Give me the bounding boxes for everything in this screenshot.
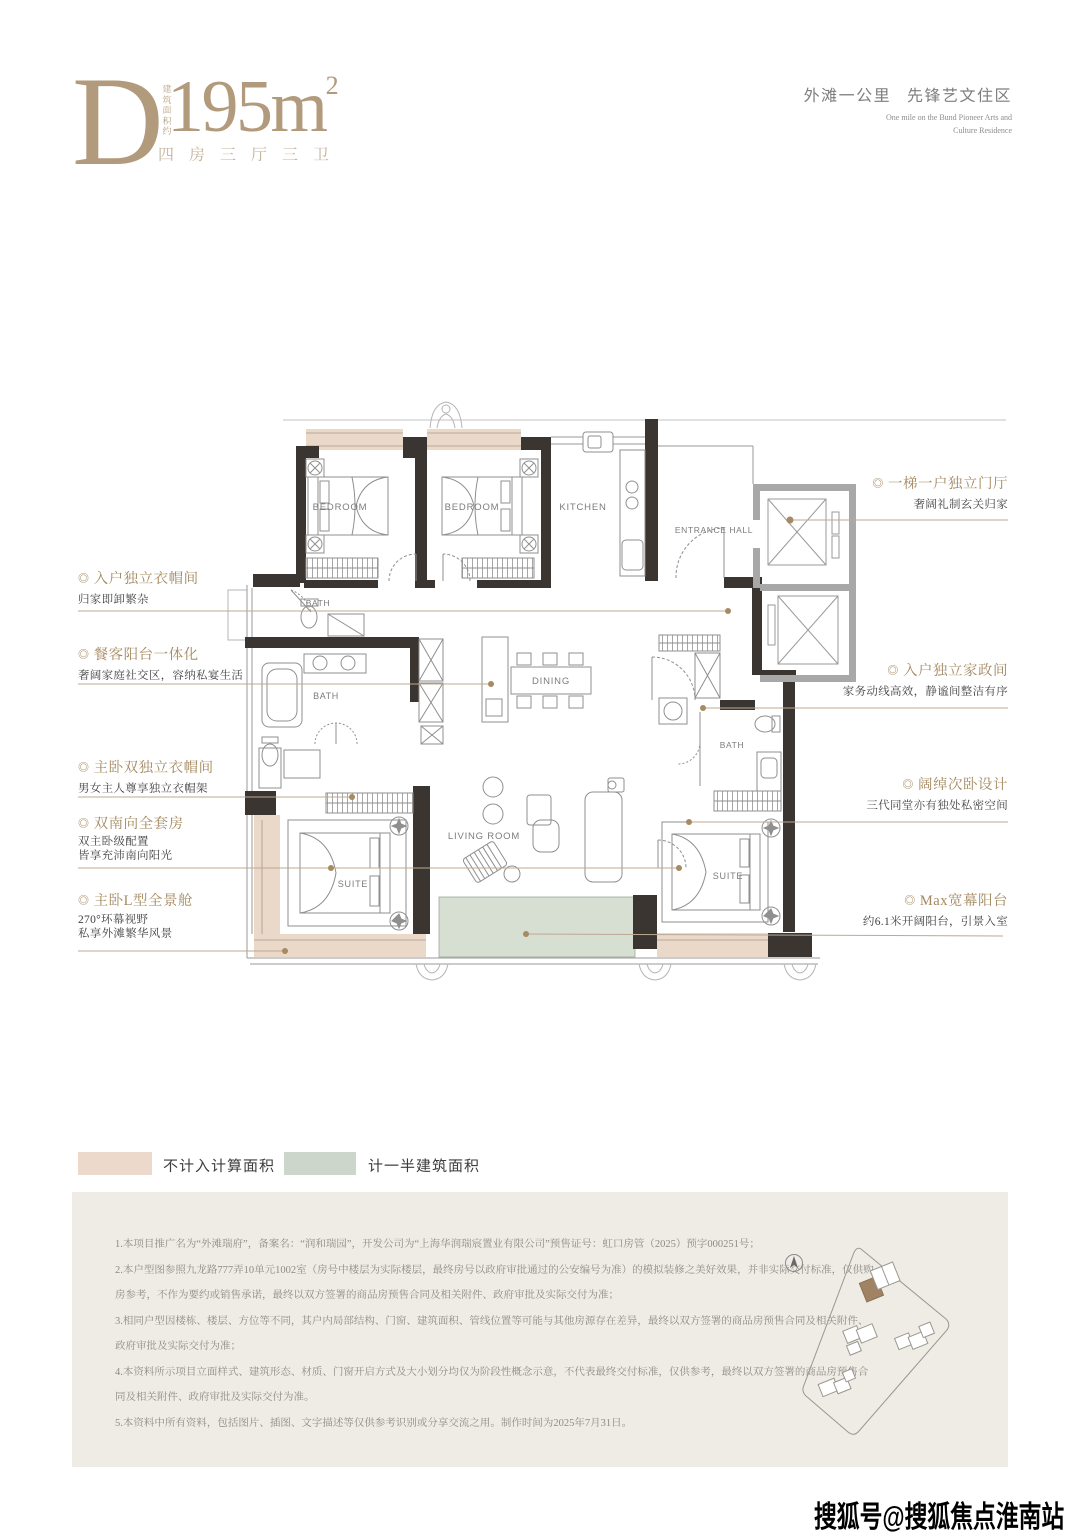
svg-text:BATH: BATH — [306, 598, 330, 608]
svg-text:BEDROOM: BEDROOM — [445, 502, 500, 513]
svg-text:BEDROOM: BEDROOM — [313, 502, 368, 513]
svg-text:BATH: BATH — [313, 691, 339, 701]
svg-text:DINING: DINING — [532, 676, 570, 687]
svg-text:SUITE: SUITE — [713, 871, 744, 881]
svg-text:SUITE: SUITE — [338, 879, 369, 889]
svg-text:LIVING ROOM: LIVING ROOM — [448, 831, 520, 842]
svg-text:KITCHEN: KITCHEN — [559, 502, 606, 513]
svg-text:BATH: BATH — [720, 740, 744, 750]
svg-text:ENTRANCE HALL: ENTRANCE HALL — [675, 525, 753, 535]
